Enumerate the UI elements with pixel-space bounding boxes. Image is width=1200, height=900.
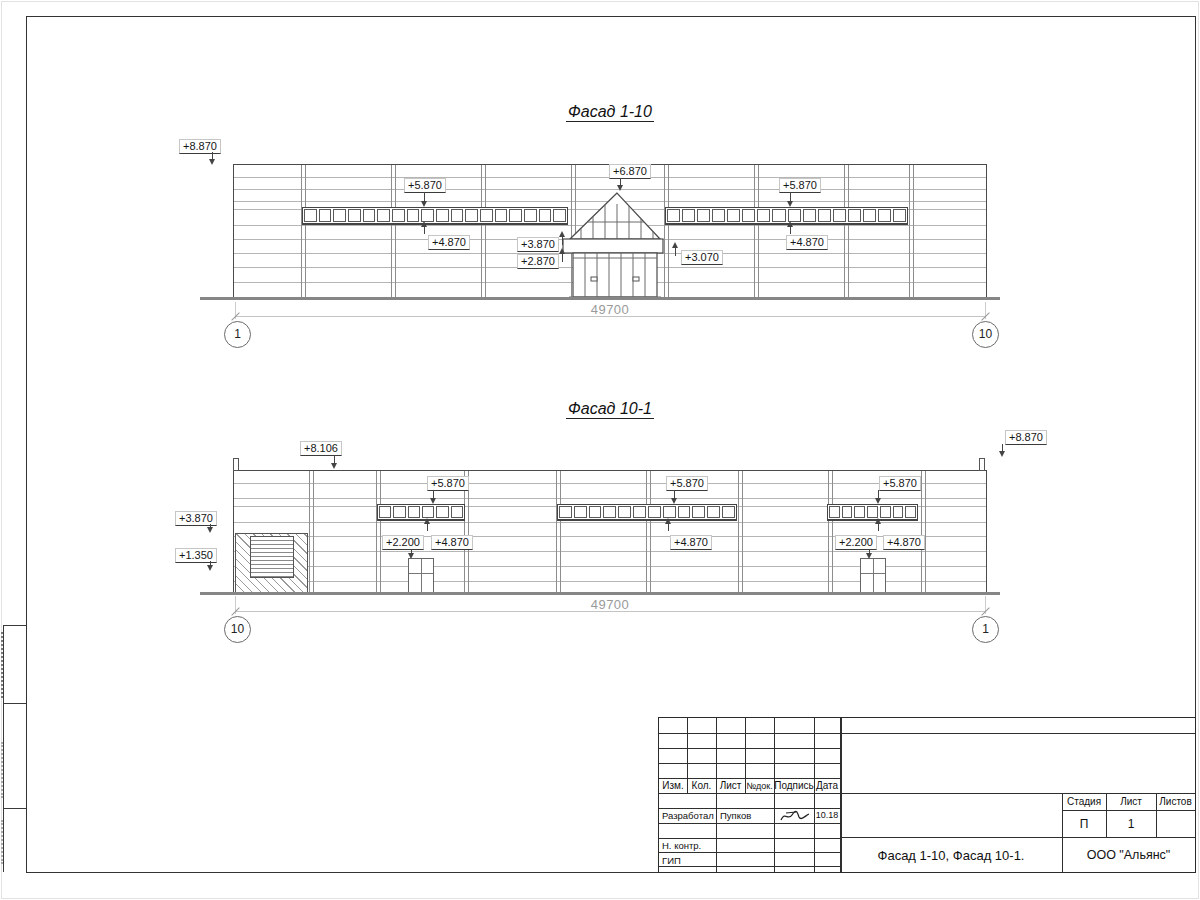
left-stamp-rotated-text [1, 820, 3, 864]
level-arrow-down [869, 549, 870, 554]
tb-line [659, 838, 840, 839]
ground-line-top [200, 297, 1000, 300]
column-line [738, 471, 743, 594]
axis-bubble-10: 10 [224, 616, 251, 643]
tb-line [840, 733, 1195, 734]
level-arrow-down [212, 152, 213, 160]
tb-line [1062, 810, 1195, 811]
window-pane [392, 209, 405, 222]
door-left [408, 558, 434, 593]
tb-line [659, 823, 840, 824]
tb-line [659, 748, 840, 749]
dimension-value-top: 49700 [560, 302, 660, 317]
window-pane [818, 209, 831, 222]
elevation-mark: +2.200 [382, 535, 424, 550]
window-band-bottom-left [377, 504, 465, 521]
elevation-mark: +5.870 [879, 476, 921, 491]
window-pane [574, 506, 587, 518]
tb-line [659, 852, 840, 853]
window-pane [333, 209, 346, 222]
window-pane [559, 506, 572, 518]
window-pane [682, 209, 695, 222]
elevation-mark: +8.870 [179, 139, 221, 154]
elevation-mark: +5.870 [666, 476, 708, 491]
level-arrow-down [878, 490, 879, 499]
elevation-mark: +8.870 [1005, 430, 1047, 445]
elevation-mark: +4.870 [670, 535, 712, 550]
column-line [481, 165, 486, 299]
level-arrow-down [674, 490, 675, 499]
parapet-strip-left [233, 458, 239, 471]
window-pane [742, 209, 755, 222]
elevation-mark: +4.870 [786, 235, 828, 250]
window-pane [422, 506, 434, 518]
facade-top-title: Фасад 1-10 [530, 103, 690, 121]
window-pane [618, 506, 631, 518]
panel-line [234, 522, 986, 523]
column-line [921, 471, 926, 594]
level-arrow-down [620, 178, 621, 186]
tb-stage-value: П [1062, 817, 1106, 831]
elevation-mark: +5.870 [779, 178, 821, 193]
elevation-mark: +4.870 [428, 235, 470, 250]
tb-row-nkontr: Н. контр. [662, 840, 701, 851]
facade-bottom-title: Фасад 10-1 [530, 400, 690, 418]
signature [778, 810, 812, 823]
window-pane [867, 506, 878, 518]
window-pane [712, 209, 725, 222]
level-arrow-up [878, 523, 879, 531]
level-arrow-down [334, 455, 335, 464]
tb-line [659, 778, 840, 779]
column-line [391, 165, 396, 299]
tb-header-izm: Изм. [659, 780, 687, 791]
window-pane [465, 209, 478, 222]
panel-line [234, 483, 986, 484]
window-pane [539, 209, 552, 222]
level-arrow-up [427, 523, 428, 531]
window-pane [348, 209, 361, 222]
left-stamp-border [3, 625, 4, 872]
window-pane [408, 506, 420, 518]
window-pane [829, 506, 840, 518]
window-band-top-left [302, 207, 568, 225]
ground-line-bottom [200, 592, 1000, 595]
window-pane [697, 209, 710, 222]
column-line [844, 165, 849, 299]
window-pane [495, 209, 508, 222]
window-pane [854, 506, 865, 518]
left-stamp-line [3, 808, 26, 809]
window-pane [692, 506, 705, 518]
elevation-mark: +4.870 [431, 535, 473, 550]
tb-line [716, 718, 717, 872]
elevation-mark: +5.870 [427, 476, 469, 491]
elevation-mark: +3.870 [517, 237, 559, 252]
hatched-wall-block [235, 533, 308, 593]
window-pane [772, 209, 785, 222]
window-pane [407, 209, 420, 222]
entrance-gable [556, 186, 672, 300]
window-pane [436, 506, 448, 518]
column-line [646, 471, 651, 594]
tb-razrabotal-name: Пупков [720, 810, 751, 821]
tb-line [659, 808, 840, 809]
window-pane [905, 506, 916, 518]
window-pane [363, 209, 376, 222]
level-arrow-up [562, 253, 563, 262]
axis-bubble-1: 1 [972, 616, 999, 643]
tb-header-ndok: №док. [745, 781, 774, 791]
tb-header-kol: Кол. [687, 780, 716, 791]
tb-row-gip: ГИП [662, 855, 681, 866]
tb-row-razrabotal: Разработал [662, 810, 714, 821]
tb-line [774, 718, 775, 872]
tb-sheet-label: Лист [1106, 796, 1156, 807]
level-arrow-up [790, 226, 791, 234]
tb-stage-label: Стадия [1062, 796, 1106, 807]
window-pane [480, 209, 493, 222]
window-pane [893, 506, 904, 518]
window-pane [893, 209, 906, 222]
window-pane [833, 209, 846, 222]
window-pane [722, 506, 735, 518]
window-pane [603, 506, 616, 518]
tb-razrabotal-date: 10.18 [814, 810, 840, 820]
tb-line [659, 733, 840, 734]
elevation-mark: +3.070 [681, 250, 723, 265]
door-right [860, 558, 886, 593]
tb-header-data: Дата [814, 780, 840, 791]
tb-header-list: Лист [716, 780, 745, 791]
axis-bubble-1: 1 [224, 321, 251, 348]
window-pane [727, 209, 740, 222]
level-arrow-up [424, 226, 425, 234]
tb-sheet-value: 1 [1106, 817, 1156, 831]
window-pane [842, 506, 853, 518]
louver-grille [250, 536, 294, 578]
elevation-mark: +4.870 [883, 535, 925, 550]
level-arrow-down [790, 192, 791, 202]
tb-company: ООО "Альянс" [1062, 848, 1195, 862]
window-pane [377, 209, 390, 222]
level-arrow-down [1002, 444, 1003, 452]
axis-bubble-10: 10 [972, 321, 999, 348]
elevation-mark: +6.870 [609, 164, 651, 179]
column-line [556, 471, 561, 594]
column-line [754, 165, 759, 299]
left-stamp-line [3, 703, 26, 704]
window-pane [451, 209, 464, 222]
window-pane [509, 209, 522, 222]
window-pane [633, 506, 646, 518]
tb-line [814, 718, 815, 872]
window-pane [379, 506, 391, 518]
elevation-mark: +2.200 [835, 535, 877, 550]
dimension-value-bottom: 49700 [560, 597, 660, 612]
window-pane [451, 506, 463, 518]
window-pane [524, 209, 537, 222]
level-arrow-down [424, 192, 425, 202]
tb-doc-title: Фасад 1-10, Фасад 10-1. [840, 848, 1062, 863]
window-pane [757, 209, 770, 222]
tb-line [659, 866, 840, 867]
window-pane [393, 506, 405, 518]
window-pane [803, 209, 816, 222]
level-arrow-up [668, 523, 669, 531]
column-line [301, 165, 306, 299]
level-arrow-up [675, 247, 676, 256]
tb-sheets-label: Листов [1156, 796, 1195, 807]
tb-line [659, 793, 840, 794]
window-pane [863, 209, 876, 222]
level-arrow-down [210, 561, 211, 566]
window-pane [678, 506, 691, 518]
window-pane [663, 506, 676, 518]
tb-line [840, 793, 1195, 794]
window-pane [878, 209, 891, 222]
level-arrow-up [562, 236, 563, 245]
window-pane [648, 506, 661, 518]
column-line [828, 471, 833, 594]
level-arrow-down [433, 490, 434, 499]
left-stamp-rotated-text [1, 742, 3, 798]
window-pane [707, 506, 720, 518]
column-line [909, 165, 914, 299]
drawing-sheet: Фасад 1-10 [0, 0, 1200, 900]
window-pane [304, 209, 317, 222]
window-pane [436, 209, 449, 222]
elevation-mark: +2.870 [517, 254, 559, 269]
column-line [309, 471, 314, 594]
window-band-bottom-mid [557, 504, 737, 521]
left-stamp-rotated-text [1, 632, 3, 698]
tb-header-podpis: Подпись [774, 780, 814, 791]
level-arrow-down [210, 524, 211, 528]
elevation-mark: +5.870 [404, 178, 446, 193]
panel-line [234, 551, 986, 552]
title-block: Изм. Кол. Лист №док. Подпись Дата Разраб… [658, 717, 1196, 873]
column-line [376, 471, 381, 594]
left-stamp-line [3, 625, 26, 626]
elevation-mark: +8.106 [300, 441, 342, 456]
panel-line [234, 498, 986, 499]
parapet-strip-right [979, 458, 985, 471]
tb-line [659, 763, 840, 764]
level-arrow-down [411, 549, 412, 554]
window-pane [848, 209, 861, 222]
window-pane [880, 506, 891, 518]
window-pane [589, 506, 602, 518]
window-band-bottom-right [827, 504, 918, 521]
window-pane [319, 209, 332, 222]
tb-line [840, 837, 1195, 838]
